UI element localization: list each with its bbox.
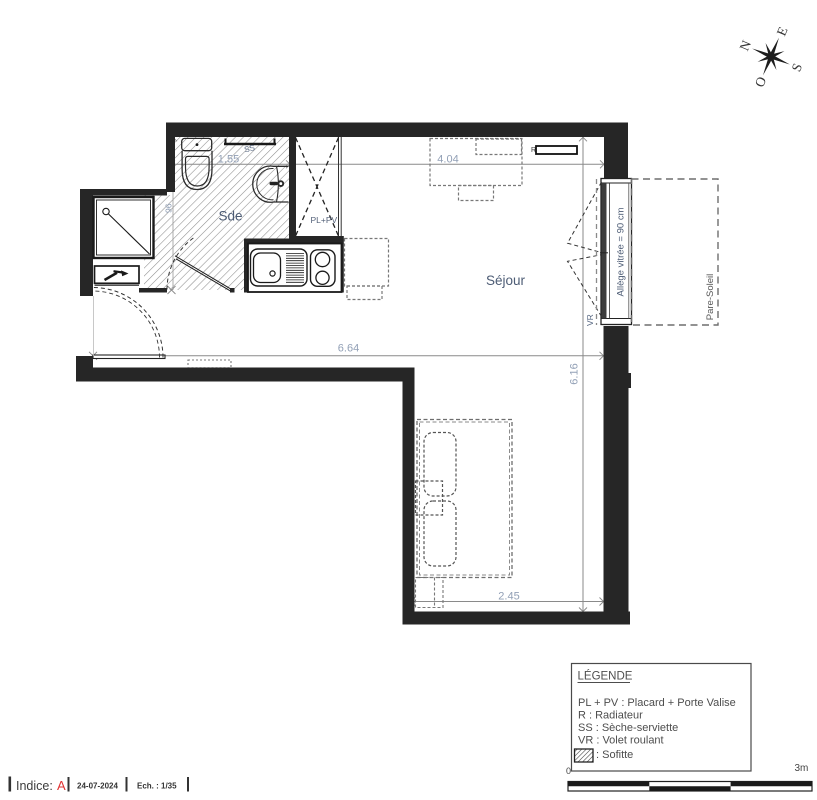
svg-text:Séjour: Séjour — [486, 273, 526, 288]
svg-text:PL + PV : Placard + Porte Vali: PL + PV : Placard + Porte Valise — [578, 697, 736, 709]
svg-text:: Sofitte: : Sofitte — [596, 749, 633, 761]
svg-text:3m: 3m — [795, 763, 809, 774]
svg-text:Sde: Sde — [219, 209, 243, 224]
svg-text:Indice:: Indice: — [16, 779, 53, 793]
svg-text:4.04: 4.04 — [437, 154, 458, 166]
svg-text:SS : Sèche-serviette: SS : Sèche-serviette — [578, 722, 678, 734]
svg-text:PL+PV: PL+PV — [311, 215, 338, 225]
svg-text:Pare-Soleil: Pare-Soleil — [705, 274, 716, 320]
svg-text:VR: VR — [585, 314, 595, 326]
svg-text:0: 0 — [566, 766, 571, 776]
svg-text:VR : Volet roulant: VR : Volet roulant — [578, 735, 664, 747]
svg-text:A: A — [57, 778, 66, 793]
svg-text:6.16: 6.16 — [569, 363, 581, 384]
svg-text:Allège vitrée = 90 cm: Allège vitrée = 90 cm — [616, 207, 627, 296]
svg-text:LÉGENDE: LÉGENDE — [578, 670, 633, 683]
svg-text:24-07-2024: 24-07-2024 — [77, 782, 118, 791]
svg-text:96: 96 — [164, 203, 174, 213]
svg-text:2.45: 2.45 — [498, 591, 519, 603]
svg-text:Ech. : 1/35: Ech. : 1/35 — [137, 782, 177, 791]
svg-text:6.64: 6.64 — [338, 343, 359, 355]
svg-text:1.55: 1.55 — [218, 154, 239, 166]
svg-text:R : Radiateur: R : Radiateur — [578, 710, 643, 722]
